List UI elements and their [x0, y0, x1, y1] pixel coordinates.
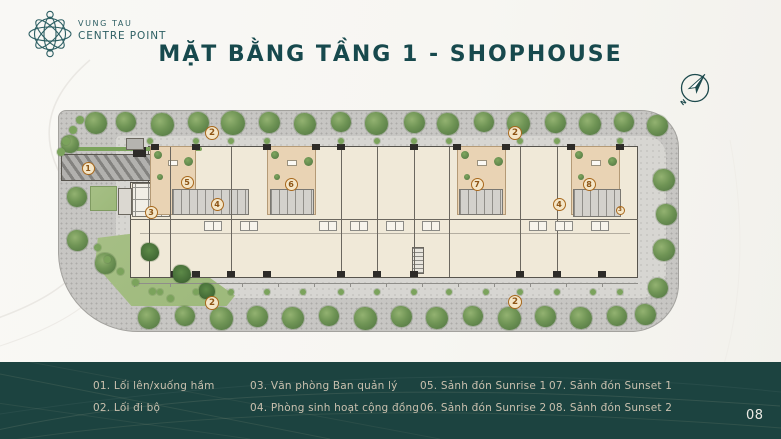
- plan-marker: 8: [583, 178, 596, 191]
- shrub-icon: [590, 289, 596, 295]
- shrub-icon: [193, 289, 199, 295]
- shrub-icon: [446, 289, 452, 295]
- restroom-fixture: [319, 221, 337, 231]
- tree-icon: [259, 112, 280, 133]
- unit-divider: [377, 147, 378, 277]
- elevator-core: [573, 189, 621, 217]
- shrub-icon: [300, 289, 306, 295]
- shrub-icon: [411, 138, 417, 144]
- unit-divider: [170, 147, 171, 277]
- tree-icon: [85, 112, 107, 134]
- plant-icon: [494, 157, 503, 166]
- shrub-icon: [69, 126, 77, 134]
- legend-column: 01. Lối lên/xuống hầm02. Lối đi bộ: [93, 380, 215, 424]
- door-tick: [337, 271, 345, 277]
- plan-marker: 7: [471, 178, 484, 191]
- tree-icon: [247, 306, 268, 327]
- tree-icon: [656, 204, 677, 225]
- shrub-icon: [617, 289, 623, 295]
- plant-icon: [578, 174, 584, 180]
- plant-icon: [464, 174, 470, 180]
- tree-icon: [404, 112, 425, 133]
- shrub-icon: [167, 295, 174, 302]
- shrub-icon: [264, 138, 270, 144]
- tree-icon: [67, 230, 88, 251]
- door-tick: [192, 271, 200, 277]
- door-tick: [616, 144, 624, 150]
- shrub-icon: [132, 279, 139, 286]
- legend-item: 07. Sảnh đón Sunset 1: [549, 380, 672, 392]
- tree-icon: [116, 112, 136, 132]
- shrub-icon: [62, 137, 70, 145]
- door-tick: [373, 271, 381, 277]
- lobby-table: [287, 160, 297, 166]
- door-tick: [410, 144, 418, 150]
- unit-divider: [414, 147, 415, 277]
- slide: VUNG TAU CENTRE POINT MẶT BẰNG TẦNG 1 - …: [0, 0, 781, 439]
- legend-item: 05. Sảnh đón Sunrise 1: [420, 380, 546, 392]
- legend-column: 05. Sảnh đón Sunrise 106. Sảnh đón Sunri…: [420, 380, 546, 424]
- compass-icon: N: [672, 66, 718, 112]
- tree-icon: [535, 306, 556, 327]
- plant-icon: [154, 151, 162, 159]
- tree-icon: [614, 112, 634, 132]
- plant-icon: [608, 157, 617, 166]
- plan-marker: 3: [616, 206, 625, 215]
- tree-icon: [570, 307, 592, 329]
- tree-icon: [175, 306, 195, 326]
- door-tick: [337, 144, 345, 150]
- tree-icon: [647, 115, 668, 136]
- tree-icon: [210, 307, 233, 330]
- door-tick: [227, 271, 235, 277]
- restroom-fixture: [204, 221, 222, 231]
- shrub-icon: [446, 138, 452, 144]
- door-tick: [312, 144, 320, 150]
- door-tick: [263, 144, 271, 150]
- legend-panel: 01. Lối lên/xuống hầm02. Lối đi bộ03. Vă…: [0, 362, 781, 439]
- legend-column: 07. Sảnh đón Sunset 108. Sảnh đón Sunset…: [549, 380, 672, 424]
- restroom-fixture: [386, 221, 404, 231]
- door-tick: [567, 144, 575, 150]
- door-tick: [598, 271, 606, 277]
- tree-icon: [294, 113, 316, 135]
- tree-icon: [635, 304, 656, 325]
- shrub-icon: [554, 138, 560, 144]
- tree-icon: [221, 111, 245, 135]
- tree-icon: [474, 112, 494, 132]
- tree-icon: [653, 239, 675, 261]
- legend-item: 04. Phòng sinh hoạt cộng đồng: [250, 402, 419, 414]
- plan-marker: 2: [205, 126, 219, 140]
- legend-item: 08. Sảnh đón Sunset 2: [549, 402, 672, 414]
- basement-ramp: [61, 154, 152, 181]
- plant-icon: [274, 174, 280, 180]
- tree-icon: [648, 278, 668, 298]
- elevator-core: [459, 189, 503, 215]
- plan-marker: 5: [181, 176, 194, 189]
- tree-icon: [354, 307, 377, 330]
- shrub-icon: [147, 138, 153, 144]
- technical-box: [126, 138, 144, 150]
- shrub-icon: [149, 288, 156, 295]
- tree-icon: [498, 307, 521, 330]
- tree-icon: [426, 307, 448, 329]
- restroom-fixture: [422, 221, 440, 231]
- plant-icon: [157, 174, 163, 180]
- shrub-icon: [117, 268, 124, 275]
- unit-divider: [231, 147, 232, 277]
- tree-icon: [138, 307, 160, 329]
- plant-icon: [184, 157, 193, 166]
- restroom-fixture: [529, 221, 547, 231]
- tree-icon: [141, 243, 159, 261]
- tree-icon: [653, 169, 675, 191]
- door-tick: [263, 271, 271, 277]
- restroom-fixture: [555, 221, 573, 231]
- shrub-icon: [554, 289, 560, 295]
- unit-divider: [520, 147, 521, 277]
- shrub-icon: [57, 148, 65, 156]
- shrub-icon: [374, 289, 380, 295]
- plan-marker: 6: [285, 178, 298, 191]
- door-tick: [192, 144, 200, 150]
- tree-icon: [391, 306, 412, 327]
- tree-icon: [463, 306, 483, 326]
- page-number: 08: [746, 408, 764, 423]
- plant-icon: [575, 151, 583, 159]
- plan-marker: 4: [211, 198, 224, 211]
- shrub-icon: [157, 289, 163, 295]
- shrub-icon: [411, 289, 417, 295]
- restroom-fixture: [240, 221, 258, 231]
- door-tick: [516, 271, 524, 277]
- page-title: MẶT BẰNG TẦNG 1 - SHOPHOUSE: [0, 42, 781, 67]
- tree-icon: [437, 113, 459, 135]
- unit-divider: [341, 147, 342, 277]
- shrub-icon: [617, 138, 623, 144]
- shrub-icon: [264, 289, 270, 295]
- door-tick: [553, 271, 561, 277]
- brand-name: VUNG TAU CENTRE POINT: [78, 19, 166, 42]
- plant-icon: [271, 151, 279, 159]
- restroom-fixture: [350, 221, 368, 231]
- tree-icon: [319, 306, 339, 326]
- unit-divider: [449, 147, 450, 277]
- legend-item: 02. Lối đi bộ: [93, 402, 215, 414]
- tree-icon: [282, 307, 304, 329]
- building-service-bump: [118, 188, 132, 215]
- plan-marker: 2: [508, 126, 522, 140]
- interior-wall: [130, 219, 638, 220]
- lawn-patch: [90, 186, 117, 211]
- tree-icon: [67, 187, 87, 207]
- tree-icon: [331, 112, 351, 132]
- legend-column: 03. Văn phòng Ban quản lý04. Phòng sinh …: [250, 380, 419, 424]
- tree-icon: [545, 112, 566, 133]
- shrub-icon: [94, 244, 101, 251]
- tree-icon: [579, 113, 601, 135]
- door-tick: [151, 144, 159, 150]
- door-tick: [502, 144, 510, 150]
- plant-icon: [304, 157, 313, 166]
- door-tick: [453, 144, 461, 150]
- unit-divider: [557, 147, 558, 277]
- restroom-fixture: [591, 221, 609, 231]
- plan-marker: 1: [82, 162, 95, 175]
- plan-marker: 3: [145, 206, 158, 219]
- shrub-icon: [228, 138, 234, 144]
- lobby-table: [591, 160, 601, 166]
- tree-icon: [173, 265, 191, 283]
- tree-icon: [365, 112, 388, 135]
- plant-icon: [461, 151, 469, 159]
- legend-item: 01. Lối lên/xuống hầm: [93, 380, 215, 392]
- shrub-icon: [517, 289, 523, 295]
- door-tick: [410, 271, 418, 277]
- lobby-table: [477, 160, 487, 166]
- tree-icon: [151, 113, 174, 136]
- shrub-icon: [193, 138, 199, 144]
- legend-item: 06. Sảnh đón Sunrise 2: [420, 402, 546, 414]
- legend-item: 03. Văn phòng Ban quản lý: [250, 380, 419, 392]
- shrub-icon: [374, 138, 380, 144]
- shrub-icon: [104, 256, 111, 263]
- shrub-icon: [338, 289, 344, 295]
- brand-line2: CENTRE POINT: [78, 30, 166, 42]
- tree-icon: [607, 306, 627, 326]
- brand-line1: VUNG TAU: [78, 19, 166, 28]
- shrub-icon: [76, 116, 84, 124]
- plan-marker: 2: [508, 295, 522, 309]
- plan-marker: 2: [205, 296, 219, 310]
- shrub-icon: [228, 289, 234, 295]
- shrub-icon: [338, 138, 344, 144]
- plan-marker: 4: [553, 198, 566, 211]
- shrub-icon: [483, 289, 489, 295]
- elevator-core: [270, 189, 314, 215]
